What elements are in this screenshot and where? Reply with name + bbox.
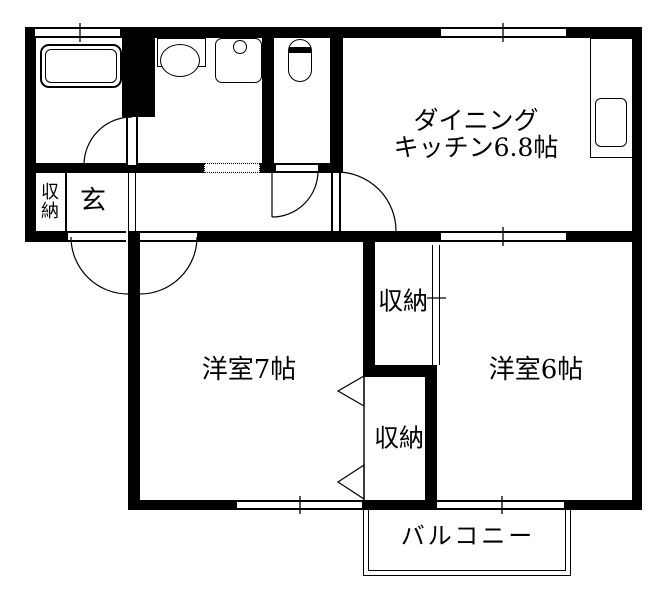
- door-swing-overlay: [0, 0, 668, 600]
- label-western-room-6: 洋室6帖: [489, 356, 584, 384]
- label-balcony: バルコニー: [401, 524, 536, 550]
- label-entrance: 玄: [80, 187, 106, 215]
- label-dining-kitchen-line2: キッチン6.8帖: [394, 134, 559, 161]
- label-dining-kitchen: ダイニング キッチン6.8帖: [394, 107, 559, 161]
- label-upper-storage: 収納: [378, 288, 428, 315]
- label-lower-storage: 収納: [374, 425, 424, 452]
- label-western-room-7: 洋室7帖: [202, 356, 297, 384]
- label-dining-kitchen-line1: ダイニング: [394, 107, 559, 134]
- folding-door-lower: [338, 465, 364, 499]
- toilet-door-arc: [272, 171, 318, 217]
- front-door-arc: [71, 237, 128, 294]
- room7-door-arc: [140, 237, 197, 294]
- floorplan-canvas: ダイニング キッチン6.8帖 洋室7帖 洋室6帖 収納 収納 玄 収納 バルコニ…: [0, 0, 668, 600]
- dk-door-arc: [337, 172, 396, 231]
- folding-door-upper: [338, 376, 364, 406]
- label-entrance-storage: 収納: [40, 183, 60, 221]
- bathroom-door-arc: [84, 117, 132, 165]
